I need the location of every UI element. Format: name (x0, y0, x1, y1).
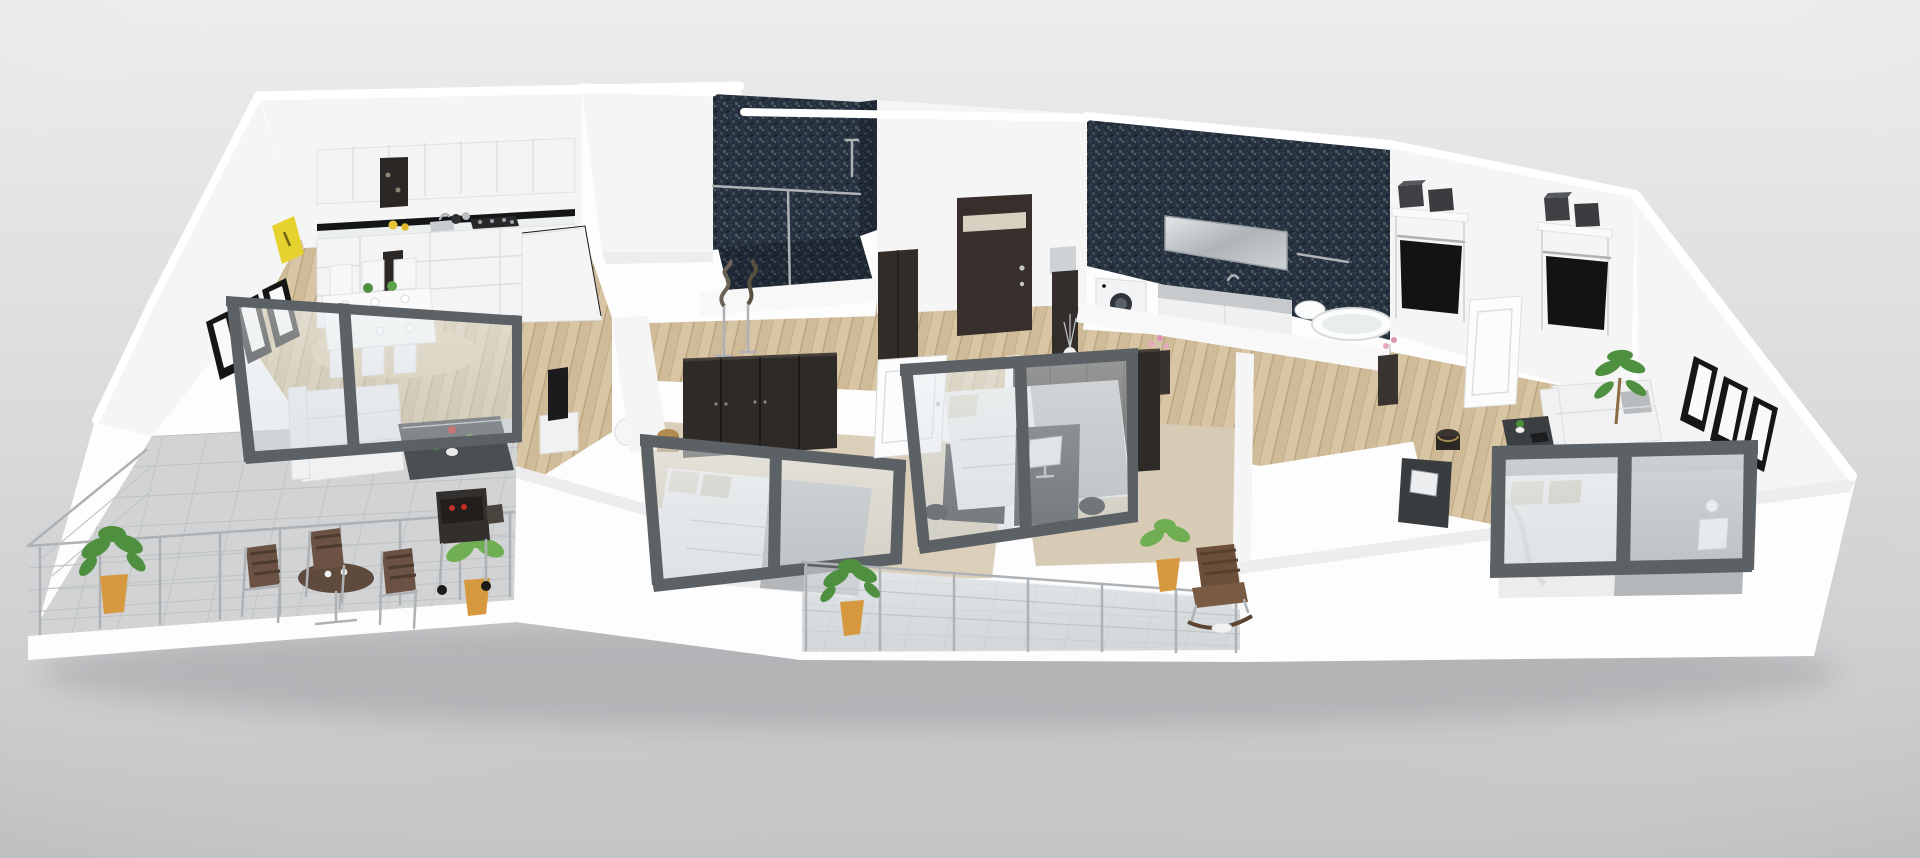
master-glass-partition (1490, 440, 1758, 578)
kitchen-right-wall-block (582, 90, 713, 252)
yellow-counter-item (389, 221, 398, 230)
kitchen-sink (430, 220, 454, 232)
kitchen-open-shelf (380, 157, 408, 208)
centerpiece-plant (363, 283, 373, 293)
living-glass-wall (226, 296, 522, 464)
bistro-table (298, 563, 374, 593)
hall-console (1052, 270, 1078, 356)
tv-screen (548, 367, 568, 421)
kitchen-upper-cabinets (317, 138, 575, 204)
storage-boxes-2 (1544, 197, 1570, 221)
master-desk (1398, 458, 1452, 528)
yellow-counter-item-2 (401, 223, 409, 231)
bedroom-2 (900, 348, 1160, 554)
balcony-side-table (1212, 623, 1232, 633)
laptop (1530, 432, 1549, 443)
kitchen-right-wall-shade (602, 252, 713, 264)
hanging-clothes-2 (1546, 256, 1608, 330)
storage-boxes (1398, 184, 1424, 208)
entry-door-handle (1019, 265, 1024, 270)
floorplan-3d-render (0, 0, 1920, 858)
hanging-clothes (1400, 240, 1462, 314)
pot-on-stove (451, 214, 461, 224)
bedroom2-glass-partition (900, 348, 1140, 554)
hall-sconce (1050, 246, 1076, 274)
master-monitor (1410, 470, 1438, 496)
floorplan-render-page: { "meta": { "description": "3D rendered … (0, 0, 1920, 858)
